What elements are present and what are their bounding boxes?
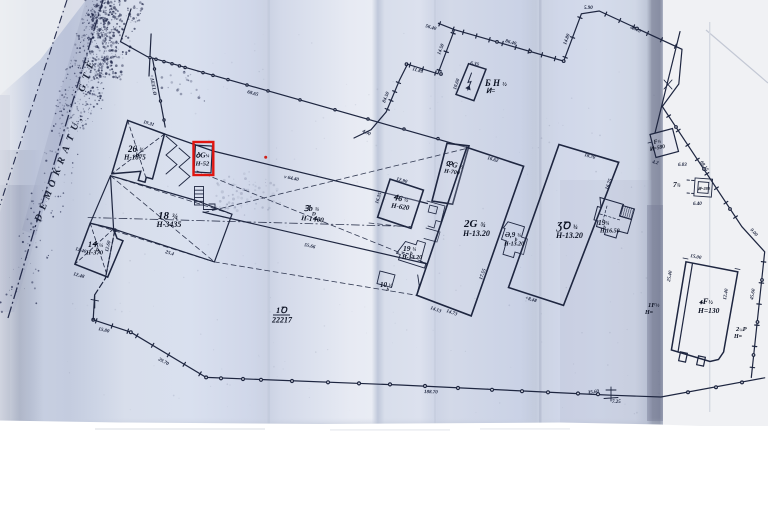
svg-text:22217: 22217 (271, 316, 293, 325)
svg-text:2¼P: 2¼P (735, 326, 748, 333)
svg-text:H-13.20: H-13.20 (401, 255, 422, 261)
svg-text:H-52: H-52 (195, 161, 210, 168)
svg-text:H-370: H-370 (85, 250, 104, 257)
svg-text:1Ꝺ: 1Ꝺ (276, 305, 288, 315)
svg-text:H=: H= (644, 310, 654, 316)
svg-text:H-13.20: H-13.20 (503, 242, 524, 248)
svg-text:H-3435: H-3435 (156, 220, 182, 229)
svg-text:H 16.50: H 16.50 (599, 229, 620, 235)
svg-text:6.03: 6.03 (678, 163, 687, 168)
svg-text:Ͷ=280: Ͷ=280 (698, 186, 711, 191)
svg-text:H-1875: H-1875 (123, 154, 146, 162)
svg-text:7.25: 7.25 (612, 400, 621, 405)
svg-text:H=: H= (733, 334, 743, 340)
svg-text:1F½: 1F½ (648, 302, 660, 309)
svg-text:188.70: 188.70 (424, 390, 438, 395)
svg-text:6.40: 6.40 (693, 202, 702, 207)
svg-text:H-13.20: H-13.20 (462, 229, 490, 238)
svg-text:Ͷ=: Ͷ= (486, 87, 495, 95)
svg-text:H-13.20: H-13.20 (555, 231, 583, 240)
svg-text:H=130: H=130 (697, 306, 720, 315)
svg-text:5.90: 5.90 (584, 6, 593, 11)
